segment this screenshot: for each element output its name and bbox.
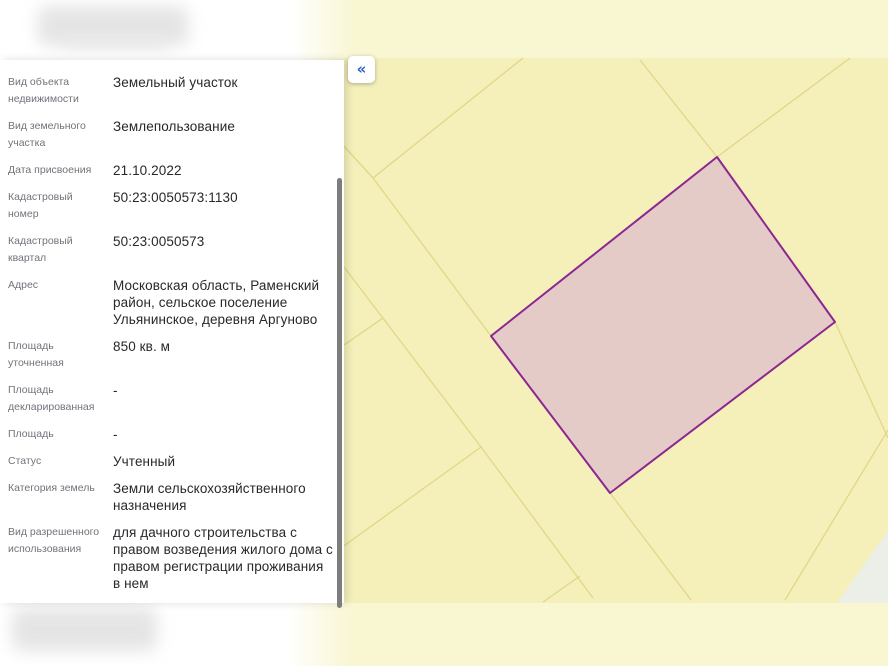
field-row: Категория земельЗемли сельскохозяйственн…: [8, 480, 334, 514]
field-label: Дата присвоения: [8, 162, 113, 179]
field-value: 850 кв. м: [113, 338, 334, 372]
field-row: Дата присвоения21.10.2022: [8, 162, 334, 179]
field-label: Вид разрешенного использования: [8, 524, 113, 592]
field-row: Форма собственностиЧастная: [8, 602, 334, 603]
field-value: для дачного строительства с правом возве…: [113, 524, 334, 592]
field-value: Землепользование: [113, 118, 334, 152]
redacted-title-area: [0, 0, 356, 60]
field-value: -: [113, 426, 334, 443]
field-label: Площадь уточненная: [8, 338, 113, 372]
field-row: Вид разрешенного использованиядля дачног…: [8, 524, 334, 592]
field-label: Адрес: [8, 277, 113, 328]
field-label: Кадастровый номер: [8, 189, 113, 223]
field-value: 21.10.2022: [113, 162, 334, 179]
field-label: Статус: [8, 453, 113, 470]
field-value: Учтенный: [113, 453, 334, 470]
field-row: Вид объекта недвижимостиЗемельный участо…: [8, 74, 334, 108]
field-label: Кадастровый квартал: [8, 233, 113, 267]
field-row: Вид земельного участкаЗемлепользование: [8, 118, 334, 152]
parcel-details-panel: Вид объекта недвижимостиЗемельный участо…: [0, 60, 344, 603]
panel-scrollbar[interactable]: [337, 178, 342, 608]
field-label: Площадь декларированная: [8, 382, 113, 416]
field-row: Площадь декларированная-: [8, 382, 334, 416]
field-row: Кадастровый номер50:23:0050573:1130: [8, 189, 334, 223]
field-value: Земли сельскохозяйственного назначения: [113, 480, 334, 514]
field-row: Кадастровый квартал50:23:0050573: [8, 233, 334, 267]
field-label: Вид объекта недвижимости: [8, 74, 113, 108]
redacted-footer-area: [0, 603, 352, 666]
blurred-footer: [12, 608, 157, 651]
field-label: Вид земельного участка: [8, 118, 113, 152]
field-row: СтатусУчтенный: [8, 453, 334, 470]
details-list: Вид объекта недвижимостиЗемельный участо…: [8, 74, 334, 603]
field-label: Категория земель: [8, 480, 113, 514]
field-label: Форма собственности: [8, 602, 113, 603]
field-row: Площадь-: [8, 426, 334, 443]
field-value: Земельный участок: [113, 74, 334, 108]
blurred-subtitle: [62, 36, 167, 49]
field-value: Московская область, Раменский район, сел…: [113, 277, 334, 328]
field-label: Площадь: [8, 426, 113, 443]
field-value: 50:23:0050573:1130: [113, 189, 334, 223]
field-row: АдресМосковская область, Раменский район…: [8, 277, 334, 328]
field-row: Площадь уточненная850 кв. м: [8, 338, 334, 372]
field-value: 50:23:0050573: [113, 233, 334, 267]
collapse-panel-button[interactable]: «: [348, 56, 375, 83]
field-value: Частная: [113, 602, 334, 603]
field-value: -: [113, 382, 334, 416]
